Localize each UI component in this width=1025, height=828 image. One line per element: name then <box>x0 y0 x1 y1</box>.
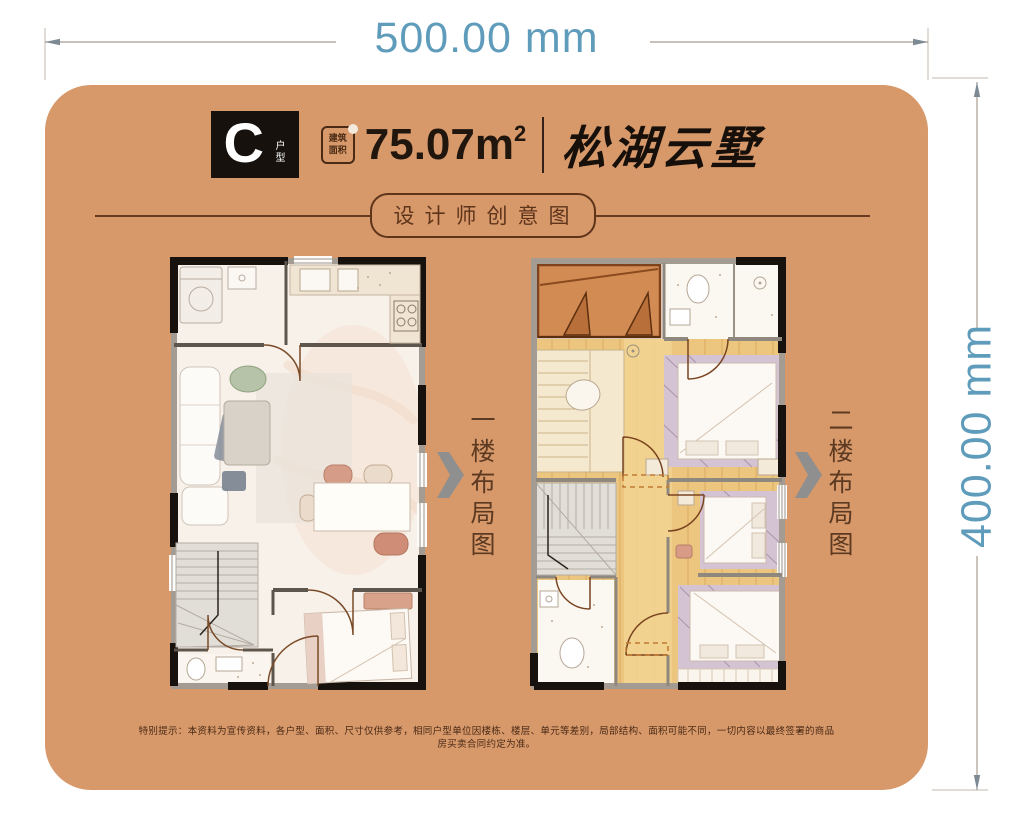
subtitle-label: 设计师创意图 <box>370 193 596 238</box>
right-chevron-icon <box>795 452 822 498</box>
disclaimer-text: 特别提示：本资料为宣传资料，各户型、面积、尺寸仅供参考，相同户型单位因楼栋、楼层… <box>137 726 837 752</box>
stairs <box>176 543 258 647</box>
floor-plan-2 <box>528 255 788 692</box>
poster-card: C 户型 建筑 面积 75.07m2 松湖云墅 设计师创意图 <box>45 85 928 790</box>
unit-type-box: C 户型 <box>211 111 299 178</box>
subtitle-line-left <box>95 215 370 217</box>
project-name: 松湖云墅 <box>560 112 765 178</box>
bathroom-lower <box>538 580 614 684</box>
header: C 户型 建筑 面积 75.07m2 松湖云墅 <box>45 111 928 178</box>
unit-letter: C <box>224 115 264 171</box>
floor2-layout-label: 二楼布局图 <box>821 407 857 562</box>
width-dimension-label: 500.00 mm <box>45 14 928 63</box>
badge-dot <box>348 124 358 134</box>
wardrobe <box>536 350 624 472</box>
header-divider <box>542 117 544 173</box>
floorplan-poster: 500.00 mm 400.00 mm C 户型 建筑 面积 75.07m2 松… <box>0 0 1025 828</box>
subtitle-line-right <box>596 215 871 217</box>
bathroom <box>178 654 270 682</box>
bathroom-upper <box>664 263 782 339</box>
floor1-layout-label: 一楼布局图 <box>463 407 499 562</box>
bedroom-3-bed <box>678 585 782 683</box>
height-dimension-label: 400.00 mm <box>953 324 1002 548</box>
bedroom-1-bed <box>646 355 782 475</box>
subtitle-band: 设计师创意图 <box>95 193 870 238</box>
terrace <box>538 265 660 337</box>
area-value: 75.07m2 <box>365 120 526 170</box>
area-superscript: 2 <box>514 121 526 146</box>
stairs <box>536 483 616 575</box>
unit-suffix-label: 户型 <box>271 140 286 164</box>
area-badge-line2: 面积 <box>329 145 347 157</box>
area-badge-line1: 建筑 <box>329 133 347 145</box>
floor-plan-1 <box>168 255 428 692</box>
right-chevron-icon <box>437 452 464 498</box>
area-badge: 建筑 面积 <box>321 126 355 164</box>
